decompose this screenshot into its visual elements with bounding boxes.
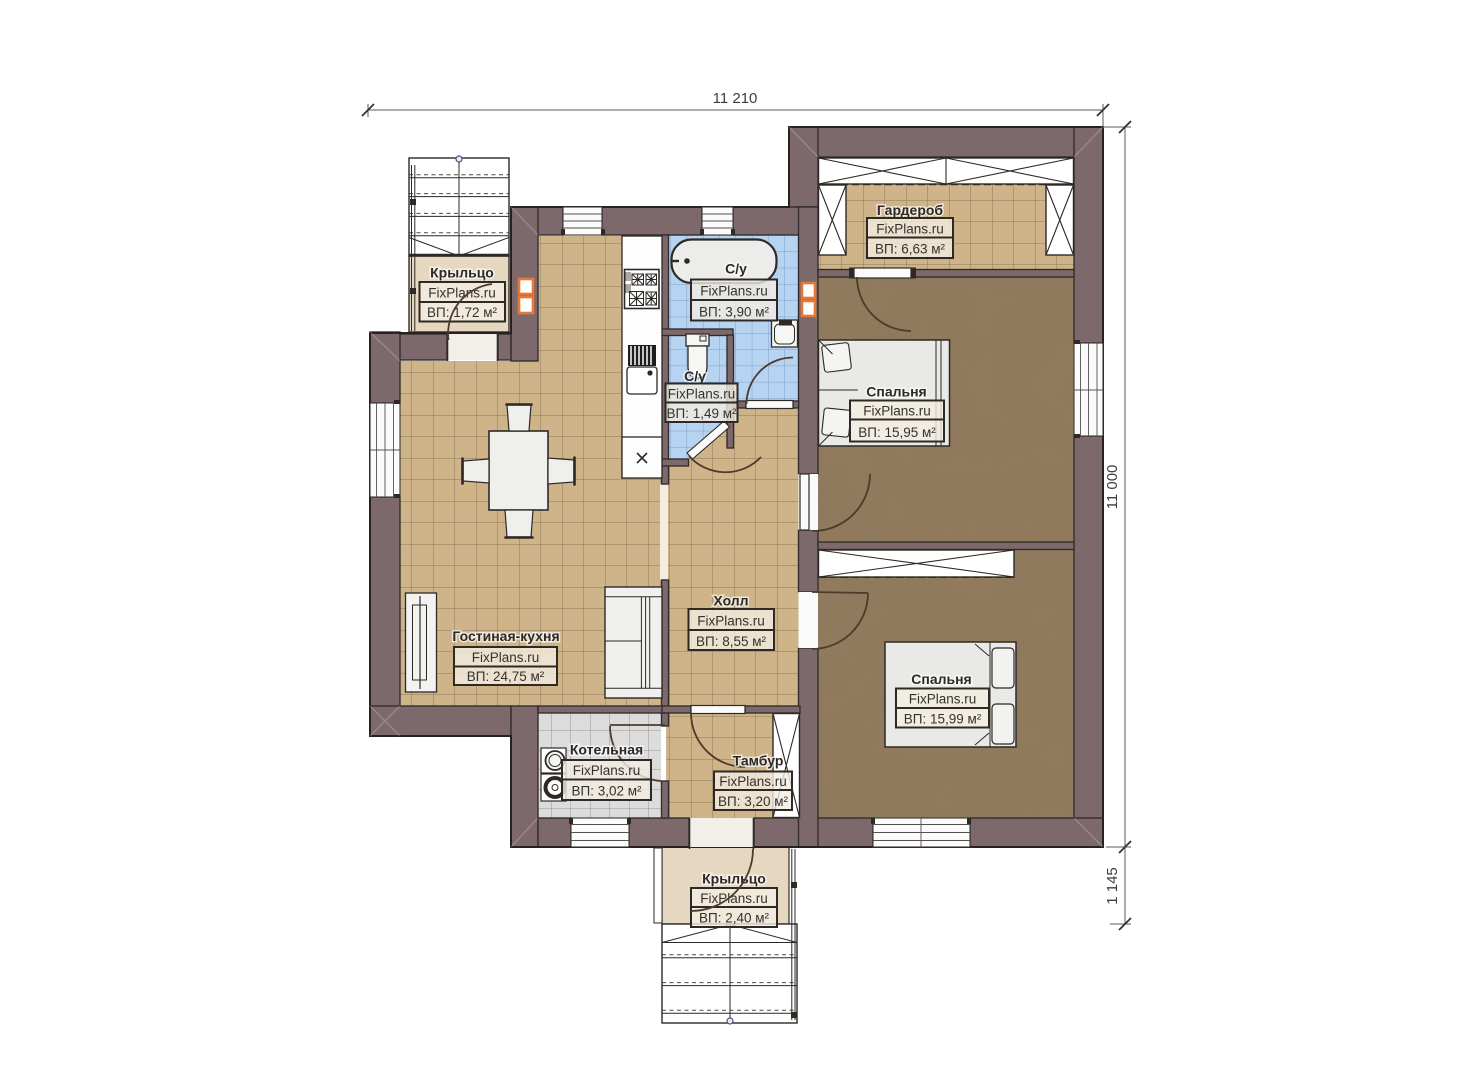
svg-text:Гардероб: Гардероб — [877, 202, 944, 218]
svg-text:FixPlans.ru: FixPlans.ru — [697, 614, 765, 629]
svg-text:11 210: 11 210 — [713, 90, 758, 107]
svg-text:ВП: 3,90 м²: ВП: 3,90 м² — [699, 305, 770, 320]
svg-text:Котельная: Котельная — [570, 742, 643, 758]
svg-text:ВП: 24,75 м²: ВП: 24,75 м² — [467, 669, 545, 684]
svg-text:ВП: 2,40 м²: ВП: 2,40 м² — [699, 911, 770, 926]
svg-text:ВП: 6,63 м²: ВП: 6,63 м² — [875, 242, 946, 257]
svg-text:ВП: 1,72 м²: ВП: 1,72 м² — [427, 305, 498, 320]
svg-text:FixPlans.ru: FixPlans.ru — [719, 774, 787, 789]
svg-text:Крыльцо: Крыльцо — [702, 871, 766, 887]
svg-text:11 000: 11 000 — [1104, 465, 1121, 510]
svg-text:Спальня: Спальня — [866, 384, 926, 400]
svg-text:ВП: 1,49 м²: ВП: 1,49 м² — [666, 406, 737, 421]
svg-text:С/у: С/у — [684, 368, 706, 384]
svg-text:FixPlans.ru: FixPlans.ru — [863, 404, 931, 419]
svg-text:ВП: 15,95 м²: ВП: 15,95 м² — [858, 425, 936, 440]
svg-text:ВП: 3,20 м²: ВП: 3,20 м² — [718, 794, 789, 809]
svg-text:ВП: 8,55 м²: ВП: 8,55 м² — [696, 634, 767, 649]
svg-text:FixPlans.ru: FixPlans.ru — [472, 650, 540, 665]
svg-text:FixPlans.ru: FixPlans.ru — [876, 222, 944, 237]
svg-text:FixPlans.ru: FixPlans.ru — [573, 763, 641, 778]
svg-text:1 145: 1 145 — [1104, 867, 1121, 905]
svg-text:FixPlans.ru: FixPlans.ru — [909, 692, 977, 707]
svg-text:Гостиная-кухня: Гостиная-кухня — [452, 628, 559, 644]
svg-text:ВП: 3,02 м²: ВП: 3,02 м² — [571, 784, 642, 799]
svg-text:Тамбур: Тамбур — [733, 753, 784, 769]
svg-text:Крыльцо: Крыльцо — [430, 265, 494, 281]
svg-text:FixPlans.ru: FixPlans.ru — [668, 387, 736, 402]
svg-text:С/у: С/у — [725, 261, 747, 277]
svg-text:Холл: Холл — [713, 593, 748, 609]
svg-text:ВП: 15,99 м²: ВП: 15,99 м² — [904, 712, 982, 727]
svg-text:Спальня: Спальня — [911, 671, 971, 687]
svg-text:FixPlans.ru: FixPlans.ru — [700, 284, 768, 299]
